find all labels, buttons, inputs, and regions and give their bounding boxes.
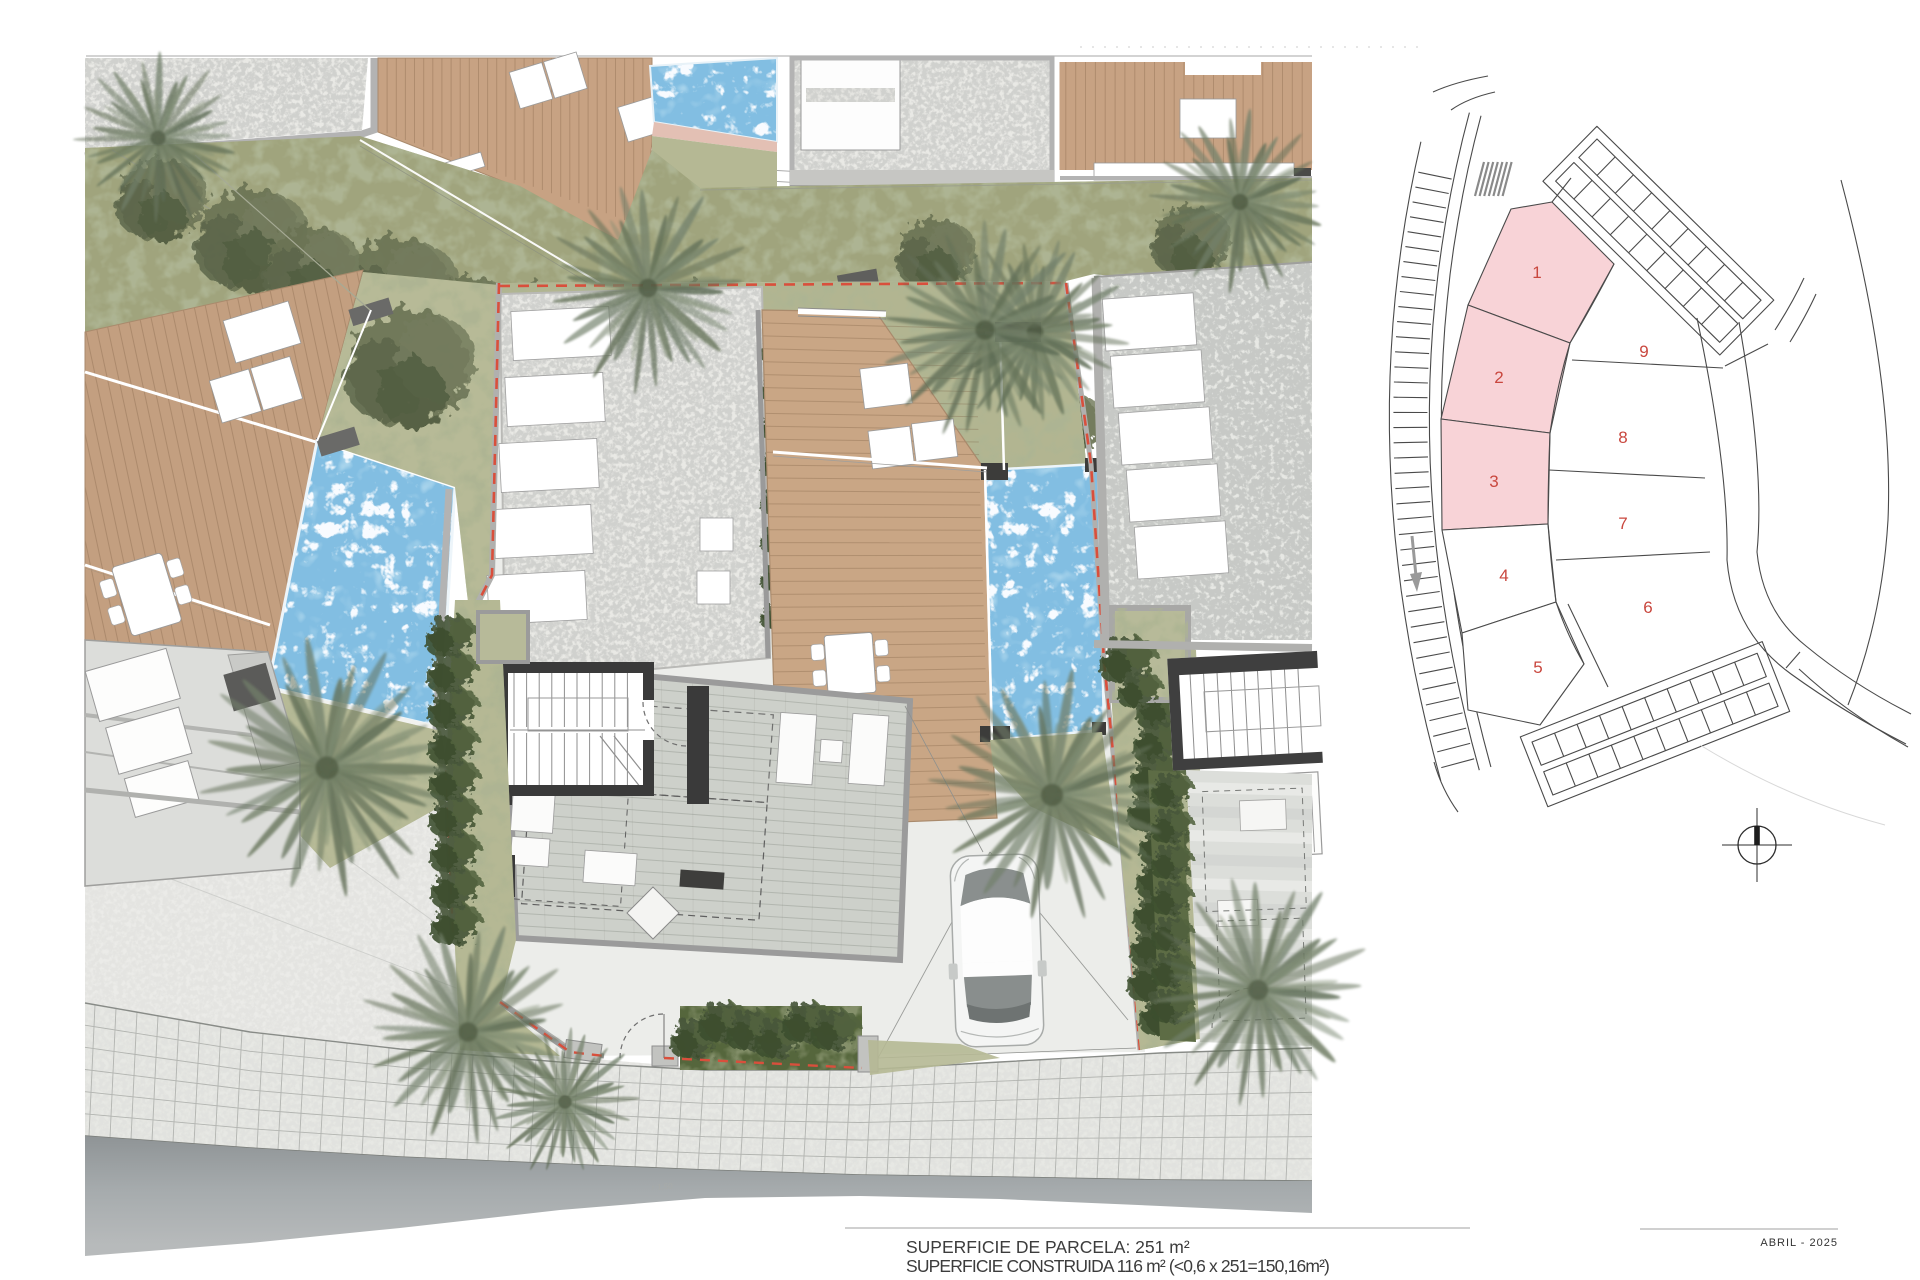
svg-text:8: 8	[1618, 428, 1627, 447]
svg-text:9: 9	[1639, 342, 1648, 361]
svg-text:ABRIL - 2025: ABRIL - 2025	[1760, 1237, 1838, 1249]
svg-text:2: 2	[1494, 368, 1503, 387]
svg-text:1: 1	[1532, 263, 1541, 282]
svg-text:r·1,50: r·1,50	[652, 1182, 674, 1192]
svg-text:SUPERFICIE CONSTRUIDA 116 m² (: SUPERFICIE CONSTRUIDA 116 m² (<0,6 x 251…	[906, 1256, 1329, 1276]
svg-text:7: 7	[1618, 514, 1627, 533]
svg-text:5: 5	[1533, 658, 1542, 677]
svg-text:SUPERFICIE DE PARCELA: 251 m²: SUPERFICIE DE PARCELA: 251 m²	[906, 1237, 1190, 1257]
svg-text:3: 3	[1489, 472, 1498, 491]
svg-text:4: 4	[1499, 566, 1508, 585]
svg-text:6: 6	[1643, 598, 1652, 617]
